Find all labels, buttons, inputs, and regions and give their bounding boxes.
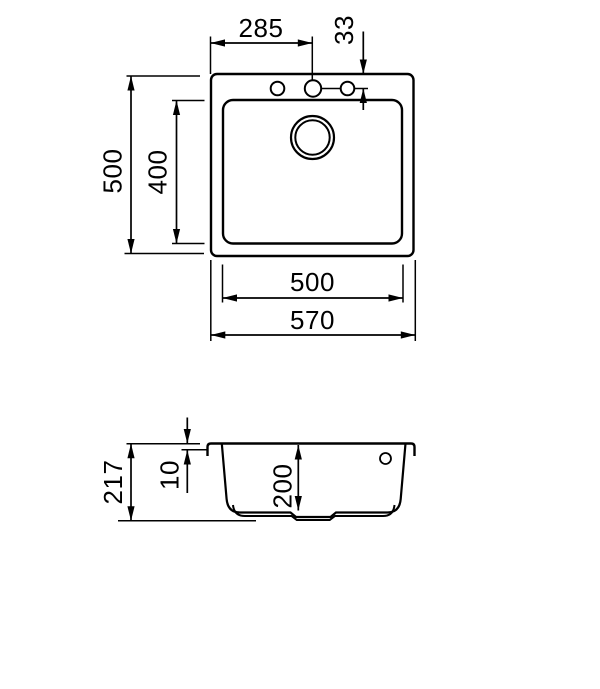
dim-400-label: 400 — [143, 150, 173, 195]
dim-bowl-inner-depth: 200 — [268, 445, 299, 511]
top-view: 285 33 500 400 500 — [98, 13, 416, 341]
dim-200-label: 200 — [268, 464, 298, 509]
drawing-svg: 285 33 500 400 500 — [0, 0, 600, 689]
tap-hole-left — [271, 82, 285, 96]
section-bowl-outline — [222, 444, 406, 518]
dim-rim-height: 10 — [155, 418, 209, 494]
sink-technical-drawing: 285 33 500 400 500 — [0, 0, 600, 689]
section-view: 217 10 200 — [98, 418, 415, 521]
dim-hole-spacing: 285 — [211, 13, 313, 74]
dim-bowl-width: 500 — [223, 265, 404, 303]
tap-hole-right — [341, 82, 355, 96]
dim-33-label: 33 — [329, 15, 359, 45]
dim-bowl-depth-top-view: 400 — [143, 101, 205, 244]
dim-570-label: 570 — [290, 305, 335, 335]
dim-285-label: 285 — [239, 13, 284, 43]
dim-10-label: 10 — [155, 460, 185, 490]
overflow-hole — [380, 453, 391, 464]
dim-217-label: 217 — [98, 460, 128, 505]
tap-hole-center — [305, 80, 321, 96]
dim-500v-label: 500 — [98, 149, 128, 194]
dim-500h-label: 500 — [290, 267, 335, 297]
drain-circle-outer — [291, 116, 334, 159]
